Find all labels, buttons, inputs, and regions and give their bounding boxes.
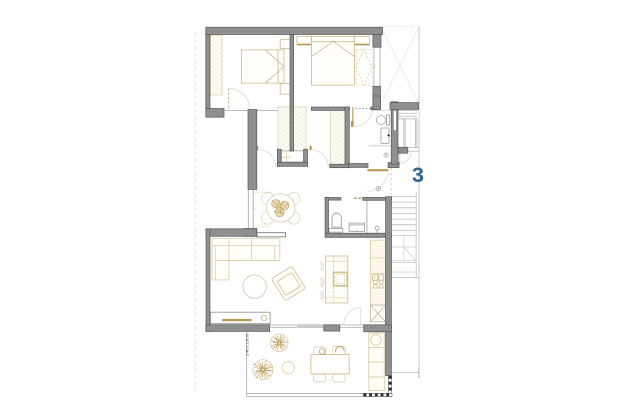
- svg-text:3: 3: [412, 163, 424, 187]
- svg-text:2.40 x 1.50 m: 2.40 x 1.50 m: [245, 334, 249, 356]
